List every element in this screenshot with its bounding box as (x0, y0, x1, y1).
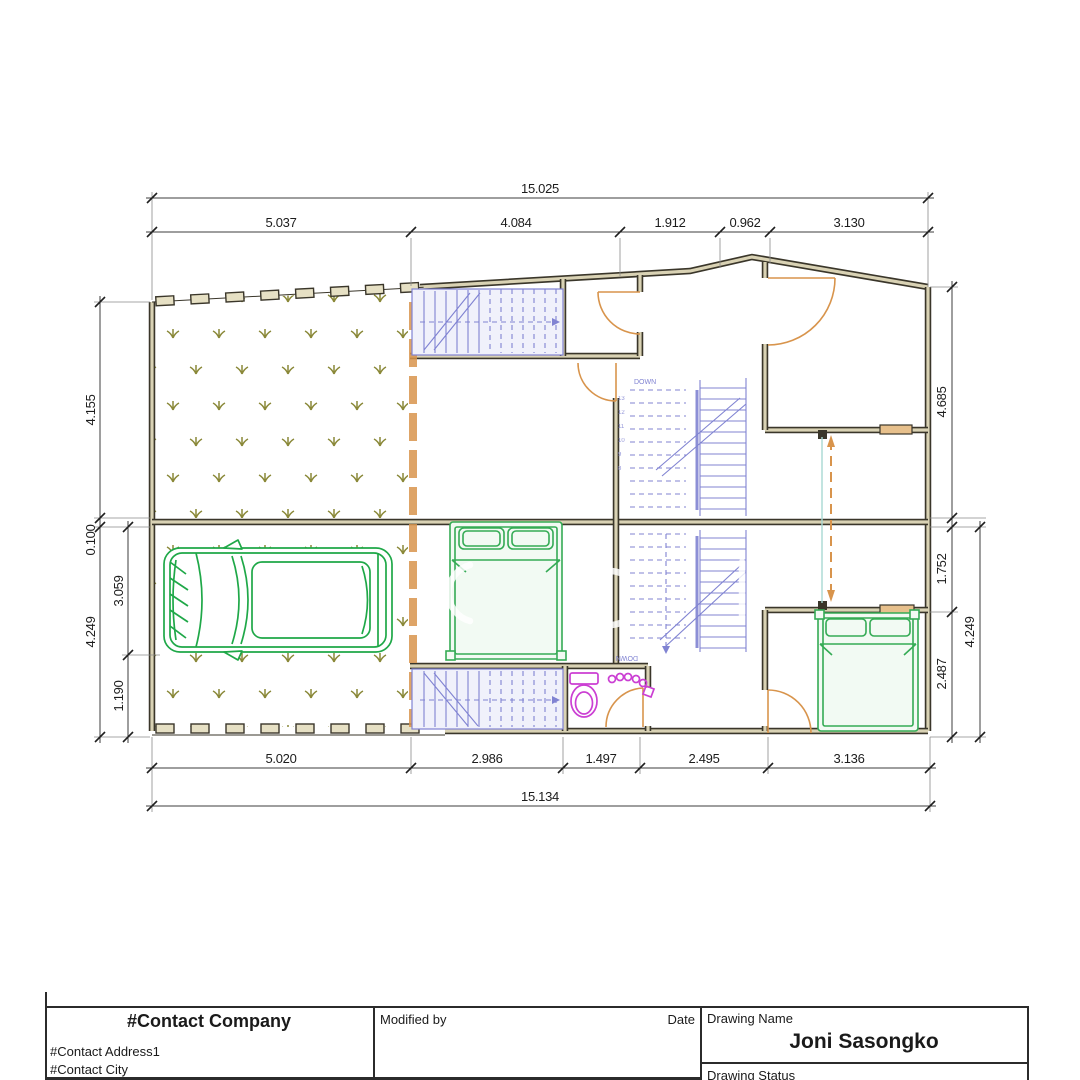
dimensions-left: 4.155 0.100 4.249 3.059 1.190 (83, 296, 160, 743)
svg-text:8: 8 (618, 466, 622, 472)
date-label: Date (640, 1012, 695, 1027)
drawing-sheet: DOWN 13 12 11 10 9 8 DOWN (0, 0, 1080, 1080)
door-arc-bottom-right-bedroom (768, 690, 811, 733)
svg-text:4.685: 4.685 (934, 386, 949, 417)
door-arc-bathroom (606, 688, 643, 727)
svg-text:1.190: 1.190 (111, 680, 126, 711)
drawing-name-value: Joni Sasongko (700, 1030, 1028, 1054)
door-arc-top-right-room (768, 278, 835, 345)
title-block-top-border (45, 1006, 1028, 1008)
stair-down-label: DOWN (634, 379, 656, 386)
svg-text:9: 9 (618, 452, 622, 458)
dim-bottom-total: 15.134 (521, 789, 559, 804)
window-upper (880, 425, 912, 434)
title-block-left-border (45, 992, 47, 1080)
bed-middle-left-bedroom (446, 522, 566, 660)
door-arc-middle-left-room (578, 363, 616, 401)
svg-text:5.037: 5.037 (265, 215, 296, 230)
drawing-status-label: Drawing Status (707, 1068, 795, 1080)
modified-by-label: Modified by (380, 1012, 446, 1027)
svg-text:0.100: 0.100 (83, 524, 98, 555)
stairs-top (412, 289, 563, 355)
svg-text:1.912: 1.912 (654, 215, 685, 230)
svg-text:2.495: 2.495 (688, 751, 719, 766)
floor-plan: DOWN 13 12 11 10 9 8 DOWN (0, 0, 1080, 1005)
car-top-view (164, 540, 392, 660)
door-arc-top-center-room (598, 292, 640, 334)
dimensions-bottom: 5.020 2.986 1.497 2.495 3.136 15.134 (146, 737, 936, 812)
svg-text:0.962: 0.962 (729, 215, 760, 230)
svg-text:3.059: 3.059 (111, 575, 126, 606)
dim-top-total: 15.025 (521, 181, 559, 196)
svg-text:4.249: 4.249 (83, 616, 98, 647)
drawing-name-divider (700, 1062, 1029, 1064)
dimensions-right: 4.685 1.752 2.487 4.249 (930, 281, 986, 743)
svg-text:13: 13 (618, 396, 625, 402)
fence-dashed-wall-bottom (152, 724, 445, 735)
svg-text:1.497: 1.497 (585, 751, 616, 766)
title-block-divider-1 (373, 1006, 375, 1080)
svg-text:3.136: 3.136 (833, 751, 864, 766)
svg-text:2.986: 2.986 (471, 751, 502, 766)
garden-hatch-upper (154, 289, 408, 518)
drawing-name-label: Drawing Name (707, 1011, 793, 1026)
stairs-bottom (412, 669, 563, 729)
svg-text:11: 11 (618, 424, 625, 430)
contact-company: #Contact Company (45, 1011, 373, 1032)
svg-text:3.130: 3.130 (833, 215, 864, 230)
contact-address1: #Contact Address1 (50, 1044, 160, 1059)
svg-text:4.155: 4.155 (83, 394, 98, 425)
bed-bottom-right-bedroom (815, 610, 919, 731)
direction-arrows (827, 435, 835, 602)
toilet (570, 673, 598, 717)
svg-text:4.084: 4.084 (500, 215, 531, 230)
svg-text:10: 10 (618, 438, 625, 444)
contact-city: #Contact City (50, 1062, 128, 1077)
svg-text:5.020: 5.020 (265, 751, 296, 766)
stair-down-label: DOWN (616, 654, 638, 661)
svg-text:2.487: 2.487 (934, 658, 949, 689)
svg-text:4.249: 4.249 (962, 616, 977, 647)
svg-text:12: 12 (618, 410, 625, 416)
svg-text:1.752: 1.752 (934, 553, 949, 584)
